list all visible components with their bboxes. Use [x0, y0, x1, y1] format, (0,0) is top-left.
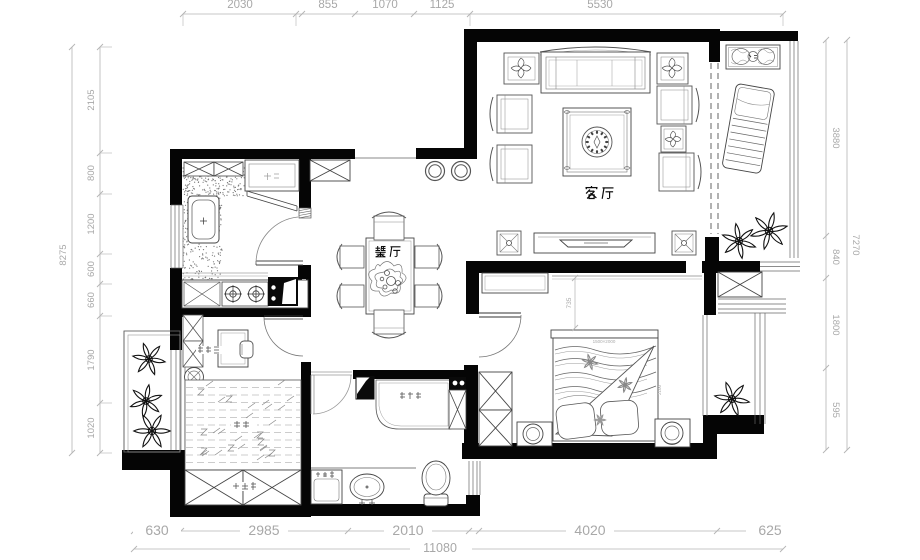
svg-text:855: 855 [318, 0, 337, 11]
svg-text:600: 600 [86, 261, 97, 277]
svg-text:5530: 5530 [587, 0, 613, 11]
svg-text:1500×2000: 1500×2000 [593, 339, 616, 344]
svg-text:840: 840 [830, 249, 841, 265]
svg-text:3880: 3880 [830, 127, 841, 148]
svg-text:2105: 2105 [86, 89, 97, 110]
svg-text:625: 625 [758, 522, 782, 538]
svg-text:1020: 1020 [86, 417, 97, 438]
svg-text:800: 800 [86, 165, 97, 181]
svg-text:735: 735 [566, 297, 573, 308]
svg-text:7270: 7270 [850, 234, 861, 255]
svg-text:1070: 1070 [372, 0, 398, 11]
svg-text:1790: 1790 [86, 349, 97, 370]
svg-text:11080: 11080 [423, 541, 457, 555]
svg-text:2985: 2985 [248, 522, 279, 538]
svg-text:1800: 1800 [830, 314, 841, 335]
svg-text:660: 660 [86, 292, 97, 308]
svg-text:2010: 2010 [392, 522, 423, 538]
svg-text:2100: 2100 [657, 384, 662, 395]
svg-text:4020: 4020 [574, 522, 605, 538]
svg-text:2030: 2030 [227, 0, 253, 11]
svg-text:1125: 1125 [430, 0, 455, 11]
svg-text:630: 630 [145, 522, 169, 538]
svg-text:8275: 8275 [58, 244, 69, 265]
svg-text:595: 595 [830, 402, 841, 418]
svg-text:1200: 1200 [86, 213, 97, 234]
